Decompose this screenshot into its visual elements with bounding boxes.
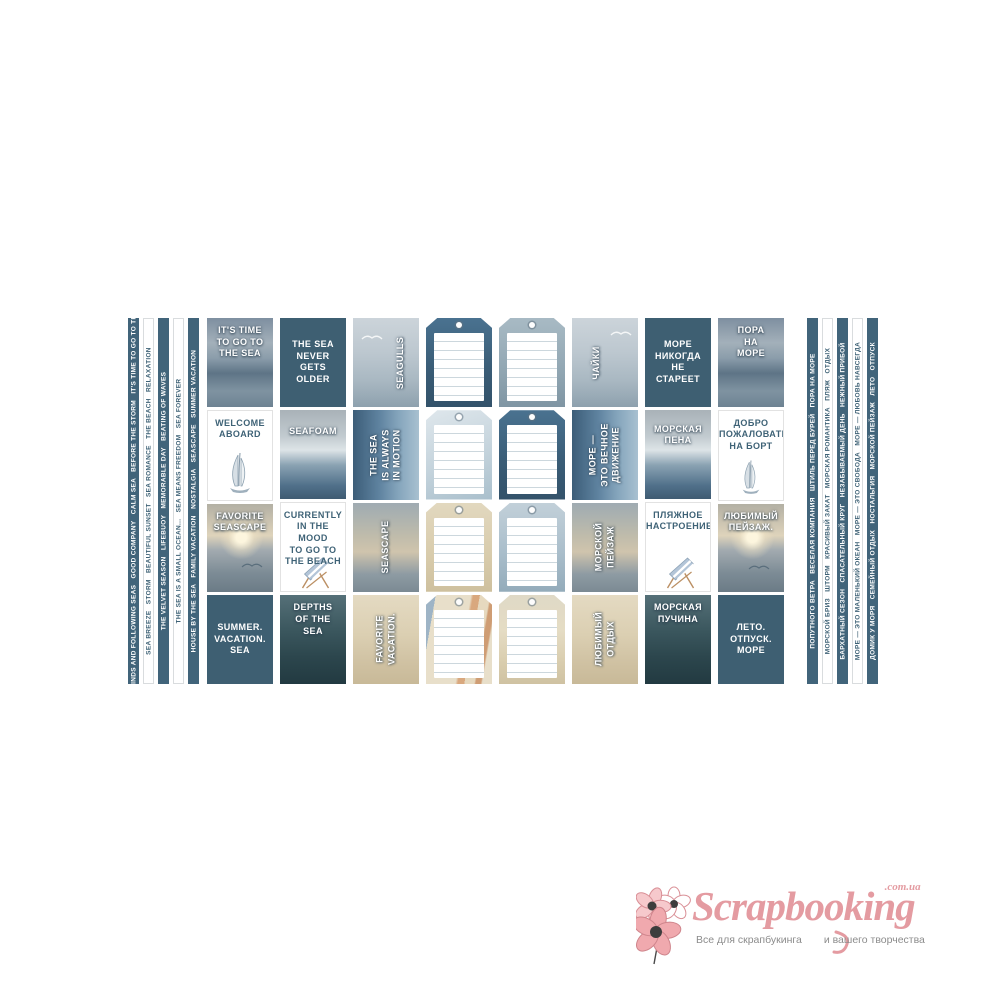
card-chaiki: ЧАЙКИ <box>572 318 638 407</box>
card-the-sea-is-always-in-motion: THE SEA IS ALWAYS IN MOTION <box>353 410 419 499</box>
card-text: ПЛЯЖНОЕ НАСТРОЕНИЕ. <box>646 503 710 533</box>
card-seafoam: SEAFOAM <box>280 410 346 499</box>
card-favorite-seascape: FAVORITE SEASCAPE <box>207 504 273 593</box>
card-more-eto-vechnoe-dvizhenie: МОРЕ — ЭТО ВЕЧНОЕ ДВИЖЕНИЕ <box>572 410 638 499</box>
card-morskaya-puchina: МОРСКАЯ ПУЧИНА <box>645 595 711 684</box>
journal-tag <box>499 595 565 684</box>
card-text: ЛЮБИМЫЙ ОТДЫХ <box>593 596 616 682</box>
card-seascape: SEASCAPE <box>353 503 419 592</box>
strip-text: FAIR WINDS AND FOLLOWING SEAS GOOD COMPA… <box>128 318 139 684</box>
journal-tag <box>426 595 492 684</box>
card-text: THE SEA IS ALWAYS IN MOTION <box>368 412 403 498</box>
flower-logo-icon <box>636 884 694 968</box>
word-strip: МОРСКОЙ БРИЗ ШТОРМ КРАСИВЫЙ ЗАКАТ МОРСКА… <box>822 318 833 684</box>
word-strips-right: ПОПУТНОГО ВЕТРА ВЕСЕЛАЯ КОМПАНИЯ ШТИЛЬ П… <box>807 318 878 684</box>
card-text: CURRENTLY IN THE MOOD TO GO TO THE BEACH <box>281 503 345 568</box>
brand-domain: .com.ua <box>885 881 921 893</box>
sailboat-icon <box>218 450 262 498</box>
strip-text: THE VELVET SEASON LIFEBUOY MEMORABLE DAY… <box>158 318 169 684</box>
card-seagulls: SEAGULLS <box>353 318 419 407</box>
card-column-russian-vertical: ЧАЙКИ МОРЕ — ЭТО ВЕЧНОЕ ДВИЖЕНИЕ МОРСКОЙ… <box>572 318 638 684</box>
strip-text: HOUSE BY THE SEA FAMILY VACATION NOSTALG… <box>188 318 199 684</box>
strip-text: THE SEA IS A SMALL OCEAN... SEA MEANS FR… <box>173 318 184 684</box>
word-strip: ДОМИК У МОРЯ СЕМЕЙНЫЙ ОТДЫХ НОСТАЛЬГИЯ М… <box>867 318 878 684</box>
word-strip: HOUSE BY THE SEA FAMILY VACATION NOSTALG… <box>188 318 199 684</box>
strip-text: SEA BREEZE STORM BEAUTIFUL SUNSET SEA RO… <box>143 318 154 684</box>
card-its-time-to-go-to-the-sea: IT'S TIME TO GO TO THE SEA <box>207 318 273 407</box>
tag-writing-panel <box>507 610 557 678</box>
card-morskoy-peyzazh: МОРСКОЙ ПЕЙЗАЖ <box>572 503 638 592</box>
card-lyubimy-otdykh: ЛЮБИМЫЙ ОТДЫХ <box>572 595 638 684</box>
card-text: SUMMER. VACATION. SEA <box>207 622 273 657</box>
tag-column-1 <box>426 318 492 684</box>
word-strip: БАРХАТНЫЙ СЕЗОН СПАСАТЕЛЬНЫЙ КРУГ НЕЗАБЫ… <box>837 318 848 684</box>
strip-text: ПОПУТНОГО ВЕТРА ВЕСЕЛАЯ КОМПАНИЯ ШТИЛЬ П… <box>807 318 818 684</box>
card-lyubimy-peyzazh: ЛЮБИМЫЙ ПЕЙЗАЖ. <box>718 504 784 593</box>
journal-tag <box>499 503 565 592</box>
tag-column-2 <box>499 318 565 684</box>
tag-writing-panel <box>434 610 484 678</box>
card-leto-otpusk-more: ЛЕТО. ОТПУСК. МОРЕ <box>718 595 784 684</box>
journal-tag <box>499 318 565 407</box>
card-text: SEAGULLS <box>395 320 407 406</box>
strip-text: МОРСКОЙ БРИЗ ШТОРМ КРАСИВЫЙ ЗАКАТ МОРСКА… <box>822 318 833 684</box>
card-text: ЛЮБИМЫЙ ПЕЙЗАЖ. <box>718 504 784 534</box>
tag-writing-panel <box>507 425 557 493</box>
word-strip: THE VELVET SEASON LIFEBUOY MEMORABLE DAY… <box>158 318 169 684</box>
tag-hole-icon <box>456 414 462 420</box>
tag-hole-icon <box>456 599 462 605</box>
card-column-english-vertical: SEAGULLS THE SEA IS ALWAYS IN MOTION SEA… <box>353 318 419 684</box>
card-the-sea-never-gets-older: THE SEA NEVER GETS OLDER <box>280 318 346 407</box>
seagull-icon <box>748 562 770 572</box>
brand-name: Scrapbooking <box>692 884 915 929</box>
word-strips-left: FAIR WINDS AND FOLLOWING SEAS GOOD COMPA… <box>128 318 199 684</box>
card-welcome-aboard: WELCOME ABOARD <box>207 410 273 501</box>
card-summer-vacation-sea: SUMMER. VACATION. SEA <box>207 595 273 684</box>
sailboat-icon <box>732 458 770 498</box>
card-text: IT'S TIME TO GO TO THE SEA <box>207 318 273 360</box>
card-text: FAVORITE SEASCAPE <box>207 504 273 534</box>
tag-writing-panel <box>434 518 484 586</box>
strip-text: МОРЕ — ЭТО МАЛЕНЬКИЙ ОКЕАН МОРЕ — ЭТО СВ… <box>852 318 863 684</box>
tag-writing-panel <box>507 518 557 586</box>
word-strip: THE SEA IS A SMALL OCEAN... SEA MEANS FR… <box>173 318 184 684</box>
card-text: МОРЕ — ЭТО ВЕЧНОЕ ДВИЖЕНИЕ <box>587 412 622 498</box>
card-text: THE SEA NEVER GETS OLDER <box>280 339 346 386</box>
seagull-icon <box>610 328 632 338</box>
card-text: SEASCAPE <box>380 504 392 590</box>
tag-writing-panel <box>434 425 484 493</box>
card-text: DEPTHS OF THE SEA <box>280 595 346 637</box>
seagull-icon <box>241 560 263 570</box>
brand-wordmark: Scrapbooking .com.ua <box>692 884 915 929</box>
card-column-english-1: IT'S TIME TO GO TO THE SEA WELCOME ABOAR… <box>207 318 273 684</box>
word-strip: SEA BREEZE STORM BEAUTIFUL SUNSET SEA RO… <box>143 318 154 684</box>
tag-hole-icon <box>529 599 535 605</box>
card-more-nikogda-ne-stareet: МОРЕ НИКОГДА НЕ СТАРЕЕТ <box>645 318 711 407</box>
strip-text: БАРХАТНЫЙ СЕЗОН СПАСАТЕЛЬНЫЙ КРУГ НЕЗАБЫ… <box>837 318 848 684</box>
brand-tagline: Все для скрапбукинга и вашего творчества <box>696 934 925 946</box>
word-strip: ПОПУТНОГО ВЕТРА ВЕСЕЛАЯ КОМПАНИЯ ШТИЛЬ П… <box>807 318 818 684</box>
card-depths-of-the-sea: DEPTHS OF THE SEA <box>280 595 346 684</box>
card-text: WELCOME ABOARD <box>208 411 272 441</box>
tag-hole-icon <box>529 414 535 420</box>
card-column-russian-1: МОРЕ НИКОГДА НЕ СТАРЕЕТ МОРСКАЯ ПЕНА ПЛЯ… <box>645 318 711 684</box>
product-image-page: { "page": {"background": "#ffffff"}, "co… <box>0 0 1000 1000</box>
card-pora-na-more: ПОРА НА МОРЕ <box>718 318 784 407</box>
tag-hole-icon <box>529 322 535 328</box>
card-text: ЧАЙКИ <box>591 320 603 406</box>
card-text: SEAFOAM <box>280 410 346 438</box>
card-text: ДОБРО ПОЖАЛОВАТЬ НА БОРТ <box>719 411 783 453</box>
card-plyazhnoe-nastroenie: ПЛЯЖНОЕ НАСТРОЕНИЕ. <box>645 502 711 593</box>
tagline-right: и вашего творчества <box>824 934 925 946</box>
tag-writing-panel <box>434 333 484 401</box>
beach-chair-icon <box>660 550 702 590</box>
card-text: МОРЕ НИКОГДА НЕ СТАРЕЕТ <box>645 339 711 386</box>
journal-tag <box>426 318 492 407</box>
card-column-english-2: THE SEA NEVER GETS OLDER SEAFOAM CURRENT… <box>280 318 346 684</box>
tag-writing-panel <box>507 333 557 401</box>
seagull-icon <box>361 332 383 342</box>
shop-logo: Scrapbooking .com.ua Все для скрапбукинг… <box>636 882 936 972</box>
card-text: ЛЕТО. ОТПУСК. МОРЕ <box>718 622 784 657</box>
word-strip: FAIR WINDS AND FOLLOWING SEAS GOOD COMPA… <box>128 318 139 684</box>
card-currently-in-the-mood: CURRENTLY IN THE MOOD TO GO TO THE BEACH <box>280 502 346 593</box>
card-columns: IT'S TIME TO GO TO THE SEA WELCOME ABOAR… <box>207 318 799 684</box>
word-strip: МОРЕ — ЭТО МАЛЕНЬКИЙ ОКЕАН МОРЕ — ЭТО СВ… <box>852 318 863 684</box>
tag-hole-icon <box>456 507 462 513</box>
card-text: МОРСКОЙ ПЕЙЗАЖ <box>593 504 616 590</box>
card-text: FAVORITE VACATION. <box>374 596 397 682</box>
card-dobro-pozhalovat-na-bort: ДОБРО ПОЖАЛОВАТЬ НА БОРТ <box>718 410 784 501</box>
card-text: ПОРА НА МОРЕ <box>718 318 784 360</box>
card-favorite-vacation: FAVORITE VACATION. <box>353 595 419 684</box>
strip-text: ДОМИК У МОРЯ СЕМЕЙНЫЙ ОТДЫХ НОСТАЛЬГИЯ М… <box>867 318 878 684</box>
card-text: МОРСКАЯ ПУЧИНА <box>645 595 711 625</box>
journal-tag <box>426 410 492 499</box>
card-morskaya-pena: МОРСКАЯ ПЕНА <box>645 410 711 499</box>
card-text: МОРСКАЯ ПЕНА <box>645 410 711 447</box>
scrapbooking-cutout-sheet: FAIR WINDS AND FOLLOWING SEAS GOOD COMPA… <box>128 318 878 684</box>
card-column-russian-2: ПОРА НА МОРЕ ДОБРО ПОЖАЛОВАТЬ НА БОРТ ЛЮ… <box>718 318 784 684</box>
journal-tag <box>426 503 492 592</box>
tagline-left: Все для скрапбукинга <box>696 934 802 946</box>
tag-hole-icon <box>529 507 535 513</box>
journal-tag <box>499 410 565 499</box>
tag-hole-icon <box>456 322 462 328</box>
